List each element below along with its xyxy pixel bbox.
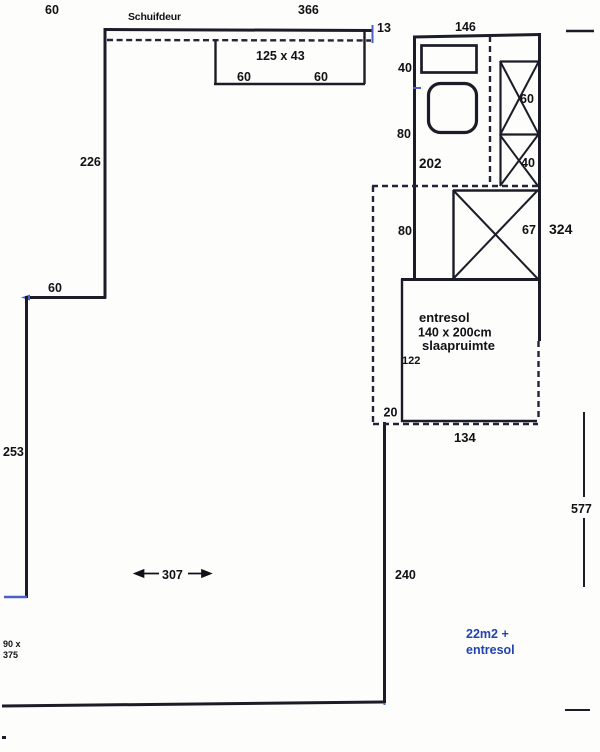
- svg-text:366: 366: [298, 3, 319, 17]
- svg-text:entresol: entresol: [419, 310, 470, 325]
- svg-text:80: 80: [398, 224, 412, 238]
- svg-text:60: 60: [45, 3, 59, 17]
- svg-text:122: 122: [402, 355, 420, 367]
- svg-text:60: 60: [237, 70, 251, 84]
- svg-text:125 x 43: 125 x 43: [256, 49, 305, 63]
- svg-text:375: 375: [3, 650, 18, 660]
- svg-text:226: 226: [80, 155, 101, 169]
- svg-text:entresol: entresol: [466, 643, 515, 657]
- svg-text:240: 240: [395, 568, 416, 582]
- svg-text:40: 40: [521, 156, 535, 170]
- svg-text:146: 146: [455, 20, 476, 34]
- svg-text:253: 253: [3, 445, 24, 459]
- svg-text:22m2 +: 22m2 +: [466, 627, 509, 641]
- svg-text:577: 577: [571, 502, 592, 516]
- svg-text:20: 20: [384, 406, 398, 420]
- svg-text:slaapruimte: slaapruimte: [422, 338, 495, 353]
- svg-text:Schuifdeur: Schuifdeur: [128, 11, 181, 23]
- svg-text:60: 60: [520, 92, 534, 106]
- svg-text:90 x: 90 x: [3, 639, 21, 649]
- svg-text:202: 202: [419, 156, 442, 171]
- svg-text:67: 67: [522, 223, 536, 237]
- svg-text:134: 134: [454, 430, 476, 445]
- svg-text:60: 60: [314, 70, 328, 84]
- svg-text:13: 13: [377, 21, 391, 35]
- svg-text:60: 60: [48, 281, 62, 295]
- svg-text:40: 40: [398, 61, 412, 75]
- svg-text:324: 324: [549, 221, 573, 237]
- svg-text:80: 80: [397, 127, 411, 141]
- svg-text:307: 307: [162, 568, 183, 582]
